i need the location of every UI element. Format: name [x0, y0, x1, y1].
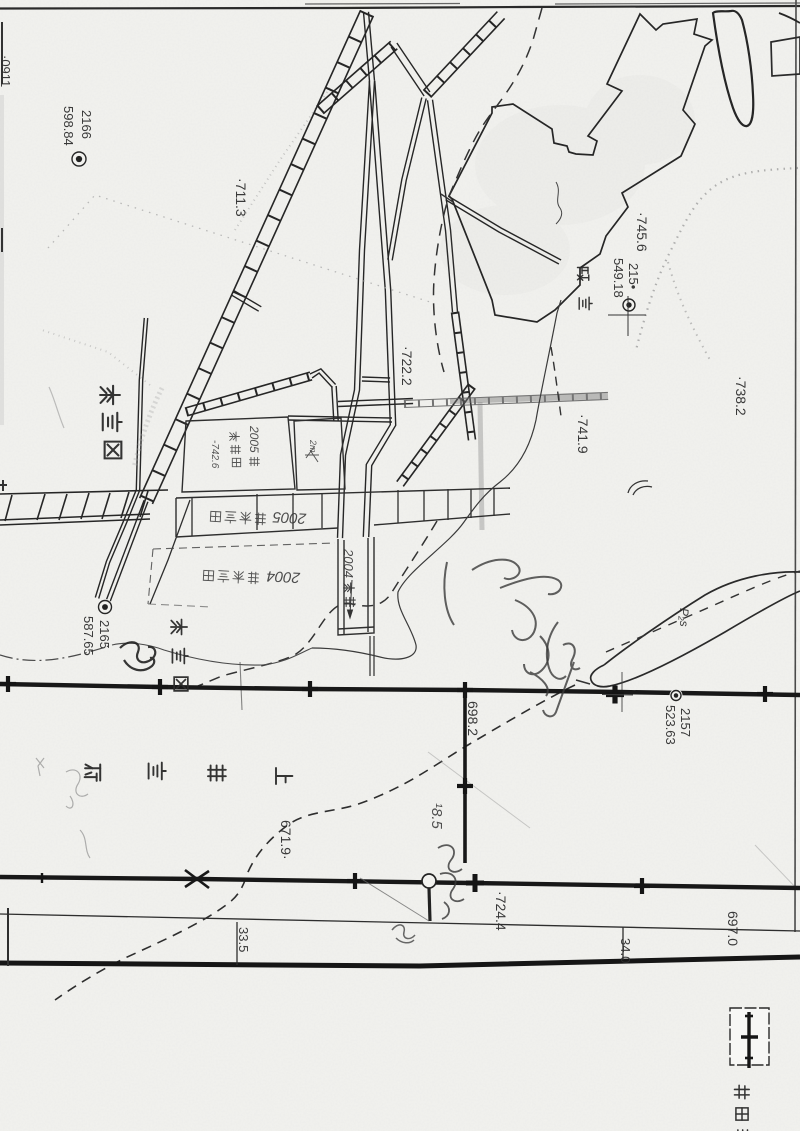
svg-text:·741.9: ·741.9 [575, 414, 591, 454]
svg-text:34.0: 34.0 [618, 938, 633, 963]
svg-text:·722.2: ·722.2 [399, 346, 415, 386]
svg-text:2166: 2166 [79, 110, 94, 139]
svg-text:·711.3: ·711.3 [233, 178, 249, 217]
svg-text:549.18: 549.18 [611, 258, 626, 298]
svg-text:2005: 2005 [272, 508, 308, 527]
svg-text:671.9·: 671.9· [278, 820, 294, 860]
svg-text:·745.6: ·745.6 [634, 212, 650, 252]
svg-text:2m: 2m [308, 439, 318, 453]
svg-text:-742.6: -742.6 [209, 440, 220, 469]
svg-text:523.63: 523.63 [663, 705, 678, 745]
svg-text:·724.4: ·724.4 [493, 891, 509, 931]
svg-text:2005: 2005 [247, 425, 261, 453]
svg-text:P₂s: P₂s [677, 608, 691, 627]
svg-text:·0911: ·0911 [0, 55, 13, 87]
svg-text:2157: 2157 [678, 708, 693, 737]
svg-text:33.5: 33.5 [236, 927, 251, 952]
svg-text:¹8.5: ¹8.5 [428, 803, 445, 830]
svg-text:598.84: 598.84 [61, 106, 76, 146]
svg-text:·738.2: ·738.2 [733, 376, 749, 416]
svg-text:2165: 2165 [97, 620, 112, 649]
svg-text:698.2: 698.2 [465, 701, 481, 736]
svg-text:2004: 2004 [341, 548, 356, 578]
svg-text:587.65: 587.65 [81, 616, 96, 656]
svg-text:2004: 2004 [266, 567, 301, 586]
svg-text:215•: 215• [626, 263, 641, 290]
svg-text:697.0: 697.0 [725, 911, 741, 946]
